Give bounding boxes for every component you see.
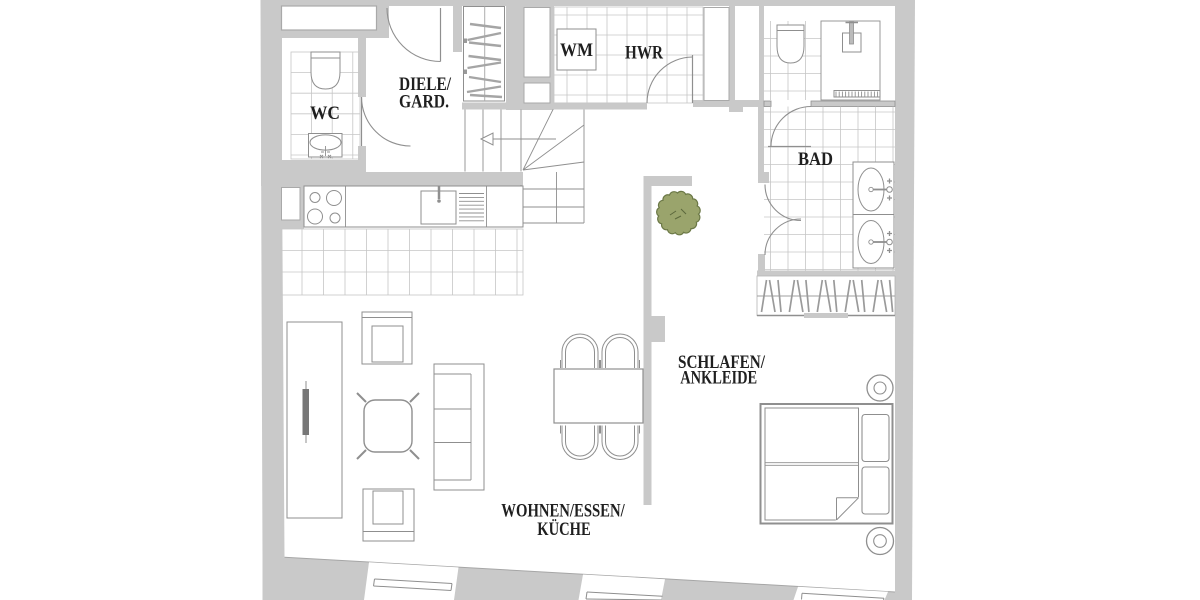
- svg-text:WM: WM: [560, 40, 593, 61]
- svg-text:BAD: BAD: [798, 149, 833, 170]
- svg-text:WC: WC: [310, 103, 340, 124]
- svg-text:HWR: HWR: [625, 43, 663, 64]
- svg-text:GARD.: GARD.: [399, 92, 449, 113]
- svg-text:KÜCHE: KÜCHE: [537, 519, 590, 540]
- svg-text:ANKLEIDE: ANKLEIDE: [680, 368, 757, 389]
